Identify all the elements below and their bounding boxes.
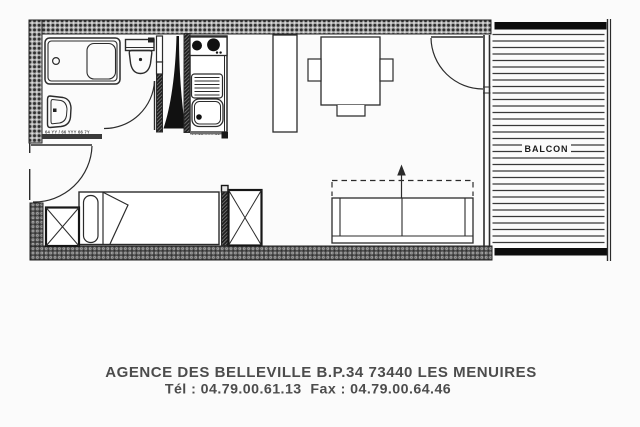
svg-text:64 YY / 66 YYY 66 7Y: 64 YY / 66 YYY 66 7Y <box>45 130 90 135</box>
svg-text:BALCON: BALCON <box>525 144 569 154</box>
svg-text:Tél : 04.79.00.61.13 Fax : 04: Tél : 04.79.00.61.13 Fax : 04.79.00.64.4… <box>165 382 451 398</box>
svg-text:AGENCE DES BELLEVILLE B.P.34 7: AGENCE DES BELLEVILLE B.P.34 73440 LES M… <box>105 364 537 381</box>
